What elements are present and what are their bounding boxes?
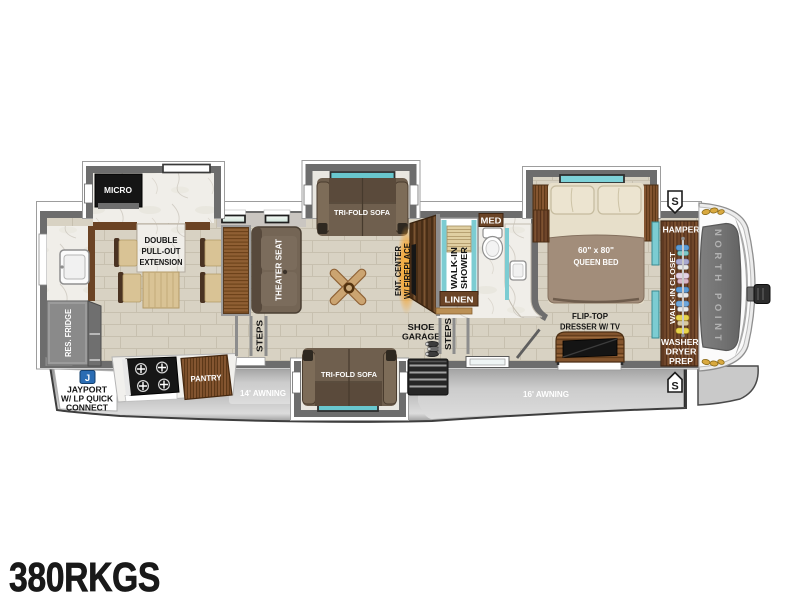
svg-text:GARAGE: GARAGE bbox=[402, 333, 441, 342]
svg-text:WALK-IN CLOSET: WALK-IN CLOSET bbox=[668, 252, 677, 324]
svg-text:16' AWNING: 16' AWNING bbox=[523, 389, 569, 399]
svg-text:PANTRY: PANTRY bbox=[190, 373, 222, 384]
svg-text:SHOE: SHOE bbox=[408, 323, 436, 332]
svg-text:RES. FRIDGE: RES. FRIDGE bbox=[64, 308, 73, 357]
svg-text:J: J bbox=[85, 373, 90, 384]
svg-text:DOUBLE: DOUBLE bbox=[145, 236, 179, 245]
svg-text:NORTH POINT: NORTH POINT bbox=[712, 229, 723, 345]
svg-text:380RKGS: 380RKGS bbox=[9, 554, 160, 600]
svg-text:WASHER/: WASHER/ bbox=[661, 338, 702, 347]
svg-text:CONNECT: CONNECT bbox=[66, 404, 108, 413]
svg-text:W/ FIREPLACE: W/ FIREPLACE bbox=[403, 242, 412, 299]
svg-text:SHOWER: SHOWER bbox=[460, 247, 469, 289]
svg-text:STEPS: STEPS bbox=[256, 319, 265, 352]
svg-text:TRI-FOLD SOFA: TRI-FOLD SOFA bbox=[321, 370, 377, 379]
svg-text:STEPS: STEPS bbox=[444, 317, 453, 350]
svg-text:THEATER SEAT: THEATER SEAT bbox=[274, 238, 284, 301]
svg-text:W/ LP QUICK: W/ LP QUICK bbox=[61, 395, 113, 404]
svg-text:JAYPORT: JAYPORT bbox=[67, 386, 107, 395]
svg-text:FLIP-TOP: FLIP-TOP bbox=[572, 312, 609, 321]
svg-text:14' AWNING: 14' AWNING bbox=[240, 388, 286, 398]
svg-text:DRYER: DRYER bbox=[666, 348, 697, 357]
svg-text:PREP: PREP bbox=[669, 357, 694, 366]
svg-text:S: S bbox=[671, 196, 678, 208]
svg-text:WALK-IN: WALK-IN bbox=[450, 247, 459, 289]
svg-text:EXTENSION: EXTENSION bbox=[140, 258, 183, 267]
svg-text:QUEEN BED: QUEEN BED bbox=[574, 258, 619, 267]
svg-text:LINEN: LINEN bbox=[445, 296, 474, 305]
svg-text:HAMPER: HAMPER bbox=[663, 226, 700, 235]
svg-text:MED: MED bbox=[481, 217, 502, 226]
svg-text:DRESSER W/ TV: DRESSER W/ TV bbox=[560, 323, 621, 332]
svg-text:60" x 80": 60" x 80" bbox=[578, 246, 614, 255]
svg-text:TRI-FOLD SOFA: TRI-FOLD SOFA bbox=[334, 208, 390, 217]
svg-text:PULL-OUT: PULL-OUT bbox=[142, 247, 181, 256]
svg-text:MICRO: MICRO bbox=[104, 186, 132, 195]
svg-text:ENT. CENTER: ENT. CENTER bbox=[394, 246, 403, 296]
svg-text:S: S bbox=[671, 381, 678, 393]
